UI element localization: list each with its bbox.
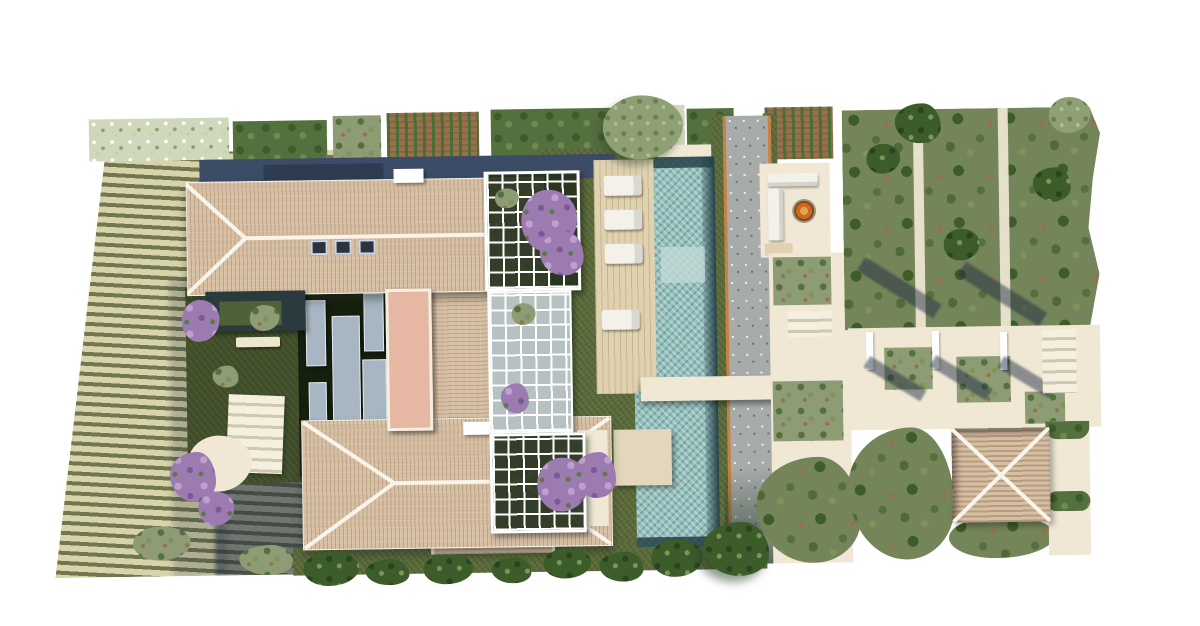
link-plant — [511, 303, 535, 325]
south-pergola — [489, 432, 586, 533]
glass-link — [487, 290, 573, 433]
pool-head-edge — [653, 156, 713, 168]
pavilion-ridge-lines — [951, 427, 1050, 522]
wall-shadow-in-orchard — [857, 257, 942, 318]
glass-roof-panel — [305, 300, 326, 366]
pergola-plant — [495, 188, 519, 208]
skylight — [334, 240, 351, 255]
outdoor-sofa-top — [768, 173, 818, 187]
flower-bed — [89, 117, 230, 161]
wisteria-canopy — [539, 231, 584, 276]
boundary-tree — [651, 538, 704, 577]
garden-bench — [236, 337, 280, 348]
solar-roof-band-dark — [263, 163, 383, 181]
spa-patch — [661, 246, 706, 283]
boundary-tree — [365, 559, 409, 586]
tree-canopy — [1032, 167, 1071, 202]
patio-hedge — [1045, 421, 1089, 440]
pool-bridge — [641, 375, 783, 401]
orchard-grove-pavilion-west — [847, 427, 955, 561]
garden-shrub — [212, 365, 238, 387]
pavilion-patio — [1047, 421, 1091, 556]
villa-site-plan — [0, 0, 1200, 626]
planting-block — [773, 380, 844, 441]
rendering-canvas — [0, 0, 1200, 626]
glass-roof-panel — [363, 293, 384, 351]
sun-lounger — [604, 209, 642, 230]
garden-steps — [788, 311, 832, 338]
olive-orchard — [842, 107, 1103, 331]
tree-canopy — [866, 144, 900, 175]
skylight — [358, 239, 375, 254]
patio-stairs — [1042, 329, 1077, 393]
planting-block — [773, 257, 832, 306]
link-plant — [501, 383, 529, 413]
tree-canopy — [943, 228, 979, 261]
sun-lounger — [602, 309, 640, 330]
boundary-tree — [599, 551, 643, 582]
boundary-tree — [423, 554, 473, 585]
north-pergola — [483, 170, 581, 291]
garden-pavilion-roof — [951, 427, 1050, 522]
sun-lounger — [604, 175, 642, 196]
boundary-tree — [303, 552, 359, 587]
sun-lounger — [605, 243, 643, 264]
boundary-tree — [491, 557, 531, 584]
skylight — [310, 240, 327, 255]
chimney — [463, 422, 491, 435]
patio-hedge — [1046, 491, 1090, 512]
boundary-tree — [543, 548, 591, 579]
outdoor-sofa-left — [768, 188, 784, 240]
swim-platform — [613, 429, 672, 486]
chimney — [393, 169, 423, 183]
courtyard-walkway — [385, 288, 433, 431]
